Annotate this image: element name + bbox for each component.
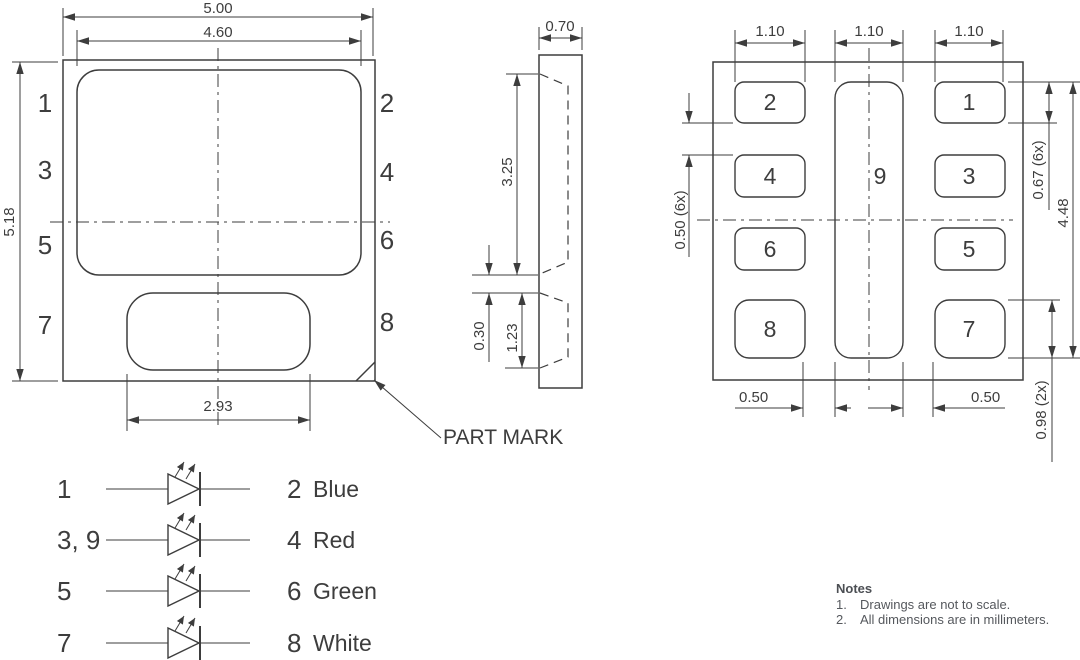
color-label: Green [313, 578, 377, 604]
side-profile-outline [539, 55, 582, 388]
dim-pad-height: 0.67 (6x) [1008, 82, 1080, 210]
dim-label: 3.25 [499, 157, 516, 186]
dim-label: 0.50 [739, 389, 768, 406]
anode-pin-label: 1 [57, 474, 71, 504]
dim-label: 4.48 [1055, 198, 1072, 227]
technical-drawing: PART MARK 5.00 4.60 5.18 2.93 1 3 5 [0, 0, 1080, 660]
dim-label: 5.00 [203, 0, 232, 17]
pin-label-6: 6 [380, 225, 394, 255]
notes-block: Notes 1.Drawings are not to scale. 2.All… [836, 581, 1049, 628]
dim-label: 1.23 [504, 323, 521, 352]
front-view: PART MARK 5.00 4.60 5.18 2.93 1 3 5 [1, 0, 563, 449]
pin-label-4: 4 [380, 157, 394, 187]
cathode-pin-label: 8 [287, 628, 301, 658]
pin-label-3: 3 [38, 155, 52, 185]
dim-lower-depth: 1.23 [504, 293, 538, 368]
pad-label-2: 2 [764, 89, 777, 115]
dim-label: 4.60 [203, 24, 232, 41]
light-emission-arrows-icon [175, 462, 195, 479]
pad-label-1: 1 [963, 89, 976, 115]
cathode-pin-label: 4 [287, 525, 301, 555]
led-diode-icon [168, 523, 200, 557]
pin-schematic: 1 2 Blue 3, 9 4 [57, 462, 377, 660]
package-outline [63, 60, 375, 381]
cathode-pin-label: 2 [287, 474, 301, 504]
led-diode-icon [168, 626, 200, 660]
pad-label-3: 3 [963, 163, 976, 189]
schematic-row-white: 7 8 White [57, 616, 372, 660]
side-view: 0.70 3.25 0.30 1.23 [471, 18, 582, 388]
schematic-row-blue: 1 2 Blue [57, 462, 359, 506]
anode-pin-label: 7 [57, 628, 71, 658]
lower-window-outline [127, 293, 310, 370]
upper-recess-hidden-line [540, 74, 568, 274]
pin-label-7: 7 [38, 310, 52, 340]
pad-label-8: 8 [764, 316, 777, 342]
pad-label-5: 5 [963, 236, 976, 262]
dim-label: 1.10 [854, 23, 883, 40]
color-label: Blue [313, 476, 359, 502]
pin-label-2: 2 [380, 88, 394, 118]
pad-label-9: 9 [874, 163, 887, 189]
pad-label-7: 7 [963, 316, 976, 342]
dim-label: 0.70 [545, 18, 574, 35]
note-item: 2.All dimensions are in millimeters. [836, 612, 1049, 628]
dim-label: 1.10 [755, 23, 784, 40]
dim-upper-depth: 3.25 [499, 74, 538, 275]
dim-column-gaps: 0.50 0.50 [735, 362, 1005, 417]
part-mark-chamfer [356, 362, 375, 381]
note-item: 1.Drawings are not to scale. [836, 597, 1049, 613]
pad-view-outline [713, 62, 1023, 380]
notes-title: Notes [836, 581, 1049, 597]
led-diode-icon [168, 472, 200, 506]
part-mark-leader [374, 380, 441, 438]
schematic-row-green: 5 6 Green [57, 564, 377, 608]
pin-label-5: 5 [38, 230, 52, 260]
dim-label: 0.67 (6x) [1030, 140, 1047, 199]
pin-label-8: 8 [380, 307, 394, 337]
schematic-row-red: 3, 9 4 Red [57, 513, 355, 557]
dim-row-gap: 0.50 (6x) [672, 93, 733, 257]
dim-label: 0.50 [971, 389, 1000, 406]
light-emission-arrows-icon [175, 616, 195, 633]
lower-recess-hidden-line [540, 293, 568, 368]
pad-label-6: 6 [764, 236, 777, 262]
dim-label: 0.98 (2x) [1033, 380, 1050, 439]
dim-side-width: 0.70 [539, 18, 582, 50]
anode-pin-label: 5 [57, 576, 71, 606]
led-diode-icon [168, 574, 200, 608]
pad-view: 2 1 4 9 3 6 5 8 7 1.10 1.10 1.10 0.50 (6… [672, 23, 1080, 462]
pad-label-4: 4 [764, 163, 777, 189]
color-label: Red [313, 527, 355, 553]
anode-pin-label: 3, 9 [57, 525, 100, 555]
cathode-pin-label: 6 [287, 576, 301, 606]
dim-label: 5.18 [1, 207, 18, 236]
emitting-surface-outline [77, 70, 361, 275]
light-emission-arrows-icon [175, 564, 195, 581]
front-pin-numbers: 1 3 5 7 2 4 6 8 [38, 88, 394, 340]
part-mark-label: PART MARK [443, 426, 563, 449]
color-label: White [313, 630, 372, 656]
dim-label: 2.93 [203, 398, 232, 415]
dim-bottom-pad-height: 0.98 (2x) [1008, 300, 1060, 462]
light-emission-arrows-icon [175, 513, 195, 530]
dim-label: 0.50 (6x) [672, 190, 689, 249]
pin-label-1: 1 [38, 88, 52, 118]
dim-label: 1.10 [954, 23, 983, 40]
led-package-drawing-page: PART MARK 5.00 4.60 5.18 2.93 1 3 5 [0, 0, 1080, 660]
dim-label: 0.30 [471, 321, 488, 350]
